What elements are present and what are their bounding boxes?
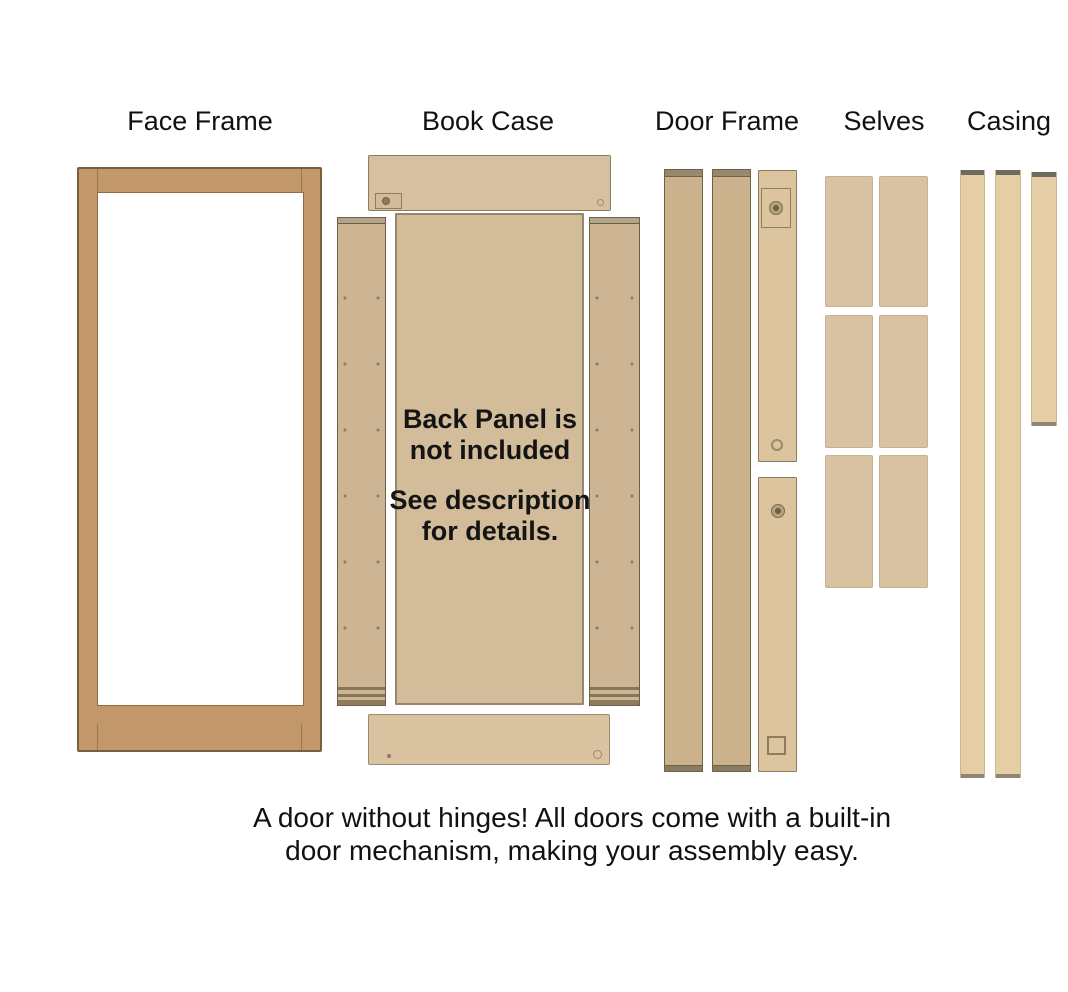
panel-end-cap [996, 774, 1020, 778]
bookcase-right-side-panel [589, 217, 640, 706]
casing-label: Casing [939, 105, 1068, 137]
face-frame-opening [97, 192, 304, 706]
shelf-panel [879, 455, 928, 588]
dado-grooves [590, 685, 639, 705]
pin-hole-icon [387, 754, 391, 758]
back-panel-note-paragraph: See description for details. [360, 485, 620, 547]
panel-end-cap [665, 765, 702, 771]
rail-joint-seam [301, 169, 302, 193]
bookcase-bottom-panel [368, 714, 610, 765]
panel-end-cap [1032, 172, 1056, 177]
door-mechanism-strip-upper [758, 170, 797, 462]
panel-end-cap [713, 170, 750, 177]
caption: A door without hinges! All doors come wi… [72, 801, 1068, 867]
caption-line: A door without hinges! All doors come wi… [72, 801, 1068, 834]
back-panel-note-paragraph: Back Panel is not included [360, 404, 620, 466]
panel-end-cap [338, 218, 385, 224]
shelves-label: Selves [814, 105, 954, 137]
rail-joint-seam [97, 724, 98, 750]
cam-lock-hole-icon [382, 197, 390, 205]
panel-end-cap [961, 170, 984, 175]
back-panel-note: Back Panel is not included See descripti… [360, 404, 620, 547]
cam-lock-bracket [375, 193, 402, 209]
panel-end-cap [996, 170, 1020, 175]
panel-end-cap [1032, 422, 1056, 426]
note-line: Back Panel is [360, 404, 620, 435]
shelf-panel [879, 176, 928, 307]
face-frame-label: Face Frame [90, 105, 310, 137]
casing-strip [1031, 172, 1057, 426]
screw-hole-icon [771, 439, 783, 451]
shelf-panel [879, 315, 928, 448]
shelf-pin-holes [595, 295, 599, 631]
panel-end-cap [590, 218, 639, 224]
door-frame-stile-left [664, 169, 703, 772]
bookcase-top-panel [368, 155, 611, 211]
cam-lock-icon [771, 504, 785, 518]
door-frame-label: Door Frame [617, 105, 837, 137]
rail-joint-seam [301, 724, 302, 750]
dado-grooves [338, 685, 385, 705]
door-frame-stile-right [712, 169, 751, 772]
caption-line: door mechanism, making your assembly eas… [72, 834, 1068, 867]
shelf-pin-holes [630, 295, 634, 631]
door-mechanism-strip-lower [758, 477, 797, 772]
shelf-pin-holes [343, 295, 347, 631]
square-mortise-icon [767, 736, 786, 755]
face-frame [77, 167, 322, 752]
screw-hole-icon [593, 750, 602, 759]
panel-end-cap [665, 170, 702, 177]
note-line: for details. [360, 516, 620, 547]
rail-joint-seam [97, 169, 98, 193]
casing-strip [995, 170, 1021, 778]
book-case-label: Book Case [378, 105, 598, 137]
note-line: See description [360, 485, 620, 516]
shelf-panel [825, 455, 873, 588]
shelf-panel [825, 315, 873, 448]
screw-hole-icon [597, 199, 604, 206]
mechanism-plate [761, 188, 791, 228]
panel-end-cap [961, 774, 984, 778]
panel-end-cap [713, 765, 750, 771]
shelf-panel [825, 176, 873, 307]
casing-strip [960, 170, 985, 778]
note-line: not included [360, 435, 620, 466]
parts-diagram: Face Frame Book Case Door Frame Selves C… [0, 0, 1068, 992]
cam-lock-icon [769, 201, 783, 215]
